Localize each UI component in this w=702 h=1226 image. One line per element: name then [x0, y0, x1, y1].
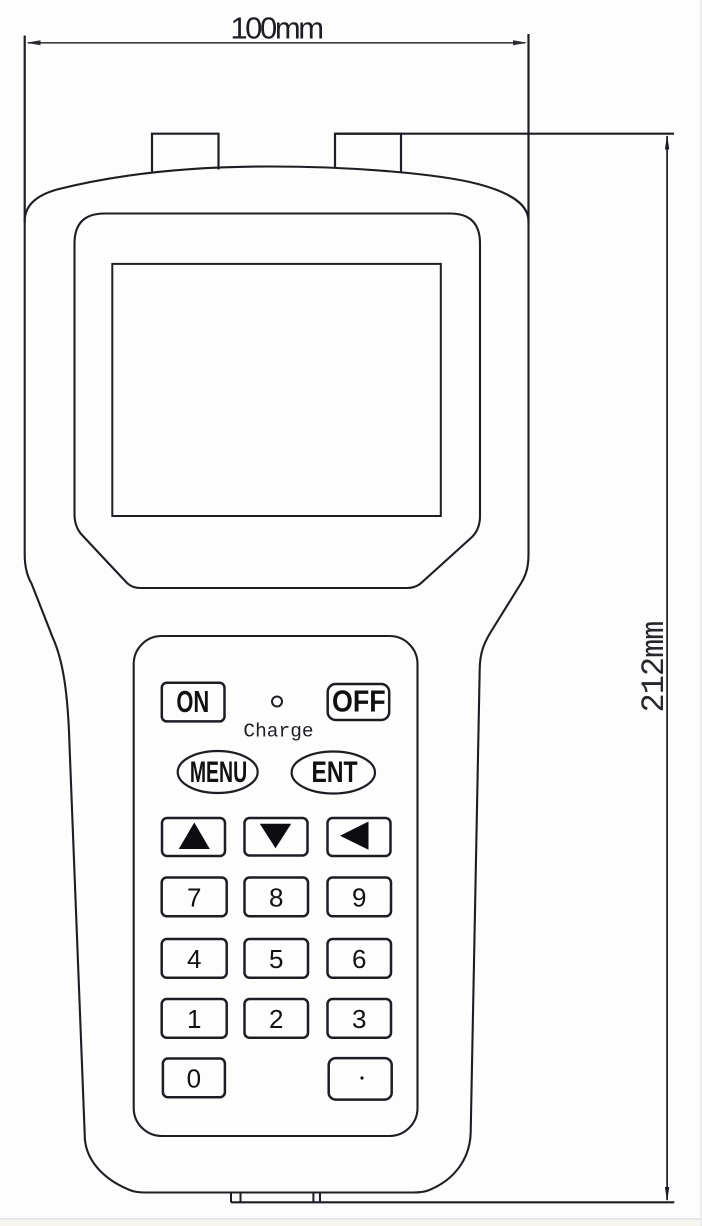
svg-text:212mm: 212mm — [636, 621, 673, 712]
svg-text:3: 3 — [352, 1004, 366, 1034]
svg-text:OFF: OFF — [332, 685, 386, 719]
svg-text:ON: ON — [176, 684, 209, 718]
svg-text:Charge: Charge — [243, 721, 313, 743]
svg-text:ENT: ENT — [312, 755, 358, 788]
svg-text:2: 2 — [269, 1004, 283, 1034]
svg-text:7: 7 — [187, 882, 201, 912]
svg-text:8: 8 — [269, 882, 283, 912]
svg-text:9: 9 — [352, 882, 366, 912]
svg-text:100mm: 100mm — [230, 11, 322, 46]
svg-text:6: 6 — [352, 944, 366, 974]
svg-text:1: 1 — [187, 1004, 201, 1034]
svg-text:5: 5 — [269, 944, 283, 974]
svg-text:MENU: MENU — [190, 756, 247, 789]
svg-text:0: 0 — [187, 1063, 201, 1093]
svg-text:4: 4 — [187, 944, 201, 974]
